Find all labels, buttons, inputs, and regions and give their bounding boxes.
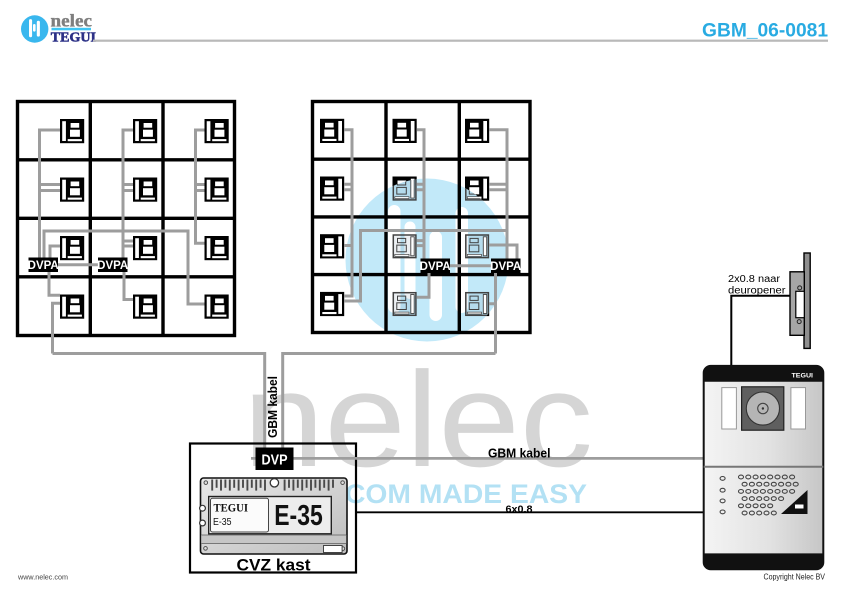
svg-text:CVZ kast: CVZ kast	[237, 556, 311, 575]
svg-text:TEGUI: TEGUI	[51, 30, 96, 45]
svg-text:TEGUI: TEGUI	[792, 372, 814, 379]
svg-text:E-35: E-35	[213, 517, 232, 528]
svg-text:E-35: E-35	[274, 500, 323, 532]
svg-text:2x0.8 naar: 2x0.8 naar	[728, 274, 781, 285]
svg-text:DVPA: DVPA	[420, 261, 451, 273]
svg-text:Copyright Nelec BV: Copyright Nelec BV	[764, 573, 826, 582]
svg-text:www.nelec.com: www.nelec.com	[17, 575, 68, 582]
svg-text:DVP: DVP	[262, 452, 288, 469]
svg-text:nelec: nelec	[51, 11, 93, 31]
svg-text:DVPA: DVPA	[28, 260, 59, 272]
svg-text:DVPA: DVPA	[97, 260, 128, 272]
svg-text:GBM_06-0081: GBM_06-0081	[702, 21, 828, 42]
svg-text:TEGUI: TEGUI	[214, 503, 249, 515]
svg-text:deuropener: deuropener	[728, 286, 786, 297]
svg-text:nelec: nelec	[243, 344, 593, 495]
svg-text:GBM kabel: GBM kabel	[488, 446, 551, 461]
svg-text:6x0.8: 6x0.8	[506, 504, 533, 516]
svg-text:DVPA: DVPA	[490, 261, 521, 273]
svg-text:COM MADE EASY: COM MADE EASY	[345, 479, 587, 509]
svg-text:GBM kabel: GBM kabel	[266, 376, 280, 438]
